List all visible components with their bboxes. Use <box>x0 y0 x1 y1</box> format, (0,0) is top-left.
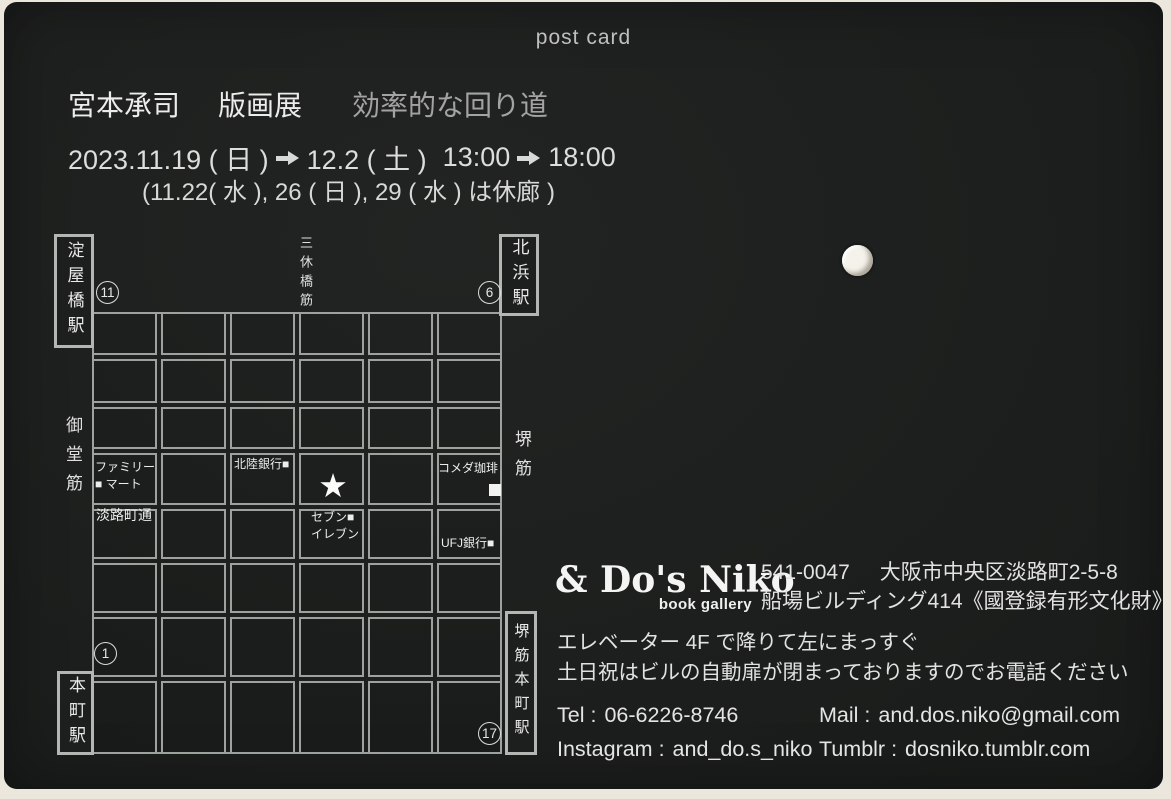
city-block <box>368 681 433 754</box>
station-name: 堺筋本町駅 <box>511 623 532 743</box>
postcard-label: post card <box>4 26 1163 50</box>
landmark-hokuriku-bank: 北陸銀行■ <box>234 456 289 473</box>
city-block <box>92 407 157 449</box>
directions-line1: エレベーター 4F で降りて左にまっすぐ <box>557 628 1129 658</box>
city-block <box>437 407 502 449</box>
city-block <box>299 563 364 613</box>
city-block <box>299 407 364 449</box>
city-block <box>299 359 364 403</box>
city-block <box>161 617 226 677</box>
city-block <box>368 563 433 613</box>
city-block <box>437 359 502 403</box>
landmark-komeda-coffee: コメダ珈琲 <box>438 460 498 477</box>
postcard: post card 宮本承司版画展効率的な回り道 2023.11.19 ( 日 … <box>4 2 1163 789</box>
street-awajimachi-dori: 淡路町通 <box>96 507 152 524</box>
city-block <box>299 681 364 754</box>
station-kitahama: 北浜駅 <box>499 234 539 316</box>
tel: Tel :06-6226-8746 <box>557 702 819 729</box>
city-block <box>230 407 295 449</box>
city-block <box>161 359 226 403</box>
city-block <box>368 407 433 449</box>
station-sakaisuji-hommachi: 堺筋本町駅 <box>505 611 537 755</box>
gallery-logo-block: & Do's Niko book gallery <box>555 560 752 613</box>
exhibition-type: 版画展 <box>218 90 302 121</box>
street-midosuji: 御堂筋 <box>60 416 85 503</box>
building-marker-icon <box>489 484 501 496</box>
exit-number-badge: 11 <box>96 281 119 304</box>
mail: Mail :and.dos.niko@gmail.com <box>819 702 1120 729</box>
street-sankyubashi-suji: 三休橋筋 <box>296 236 315 312</box>
gallery-logo: & Do's Niko <box>555 560 752 600</box>
station-name: 淀屋橋駅 <box>62 241 87 341</box>
street-sakaisuji: 堺筋 <box>509 430 534 488</box>
city-block <box>161 563 226 613</box>
city-block <box>161 453 226 505</box>
contact-info: Tel :06-6226-8746 Mail :and.dos.niko@gma… <box>557 702 1120 770</box>
postal-code: 541-0047 <box>761 558 850 587</box>
station-yodoyabashi: 淀屋橋駅 <box>54 234 94 348</box>
address-line2: 船場ビルディング414《國登録有形文化財》 <box>761 587 1171 616</box>
city-block <box>161 407 226 449</box>
right-arrow-icon <box>276 151 300 166</box>
city-block <box>92 681 157 754</box>
landmark-seven-eleven: セブン■ イレブン <box>311 509 359 543</box>
city-block <box>368 509 433 559</box>
station-name: 本町駅 <box>63 676 88 751</box>
right-arrow-icon <box>517 151 541 166</box>
closed-days-note: (11.22( 水 ), 26 ( 日 ), 29 ( 水 ) は休廊 ) <box>142 172 555 207</box>
city-block <box>230 681 295 754</box>
exit-number-badge: 6 <box>478 281 501 304</box>
city-block <box>161 509 226 559</box>
city-block <box>161 312 226 355</box>
city-block <box>230 563 295 613</box>
city-block <box>161 681 226 754</box>
station-hommachi: 本町駅 <box>57 671 94 755</box>
exit-number-badge: 17 <box>478 722 501 745</box>
city-block <box>92 312 157 355</box>
city-block <box>230 359 295 403</box>
close-time: 18:00 <box>548 142 616 173</box>
exhibition-subtitle: 効率的な回り道 <box>352 90 548 121</box>
access-map: 淀屋橋駅 北浜駅 本町駅 堺筋本町駅 11 6 1 17 三休橋筋 御堂筋 堺筋… <box>49 230 544 762</box>
city-block <box>368 359 433 403</box>
venue-star-icon: ★ <box>313 466 353 506</box>
city-block <box>299 617 364 677</box>
city-block <box>92 359 157 403</box>
address-line1: 大阪市中央区淡路町2-5-8 <box>880 558 1118 587</box>
landmark-ufj-bank: UFJ銀行■ <box>441 535 494 552</box>
access-directions: エレベーター 4F で降りて左にまっすぐ 土日祝はビルの自動扉が閉まっております… <box>557 628 1129 688</box>
city-block <box>437 563 502 613</box>
directions-line2: 土日祝はビルの自動扉が閉まっておりますのでお電話ください <box>557 658 1129 688</box>
landmark-family-mart: ファミリー ■ マート <box>95 459 155 493</box>
artist-name: 宮本承司 <box>68 90 180 121</box>
city-block <box>230 312 295 355</box>
open-time: 13:00 <box>443 142 511 173</box>
city-block <box>368 312 433 355</box>
city-block <box>92 563 157 613</box>
gallery-address: 541-0047 大阪市中央区淡路町2-5-8 船場ビルディング414《國登録有… <box>761 558 1171 616</box>
city-block <box>437 617 502 677</box>
city-block <box>299 312 364 355</box>
city-block <box>368 617 433 677</box>
exhibition-title: 宮本承司版画展効率的な回り道 <box>68 84 548 124</box>
city-block <box>230 509 295 559</box>
station-name: 北浜駅 <box>507 238 532 313</box>
city-block <box>230 617 295 677</box>
exit-number-badge: 1 <box>94 642 117 665</box>
instagram: Instagram :and_do.s_niko <box>557 736 819 763</box>
city-block-grid <box>92 312 502 754</box>
city-block <box>368 453 433 505</box>
tumblr: Tumblr :dosniko.tumblr.com <box>819 736 1090 763</box>
city-block <box>437 312 502 355</box>
punch-hole <box>842 245 873 276</box>
